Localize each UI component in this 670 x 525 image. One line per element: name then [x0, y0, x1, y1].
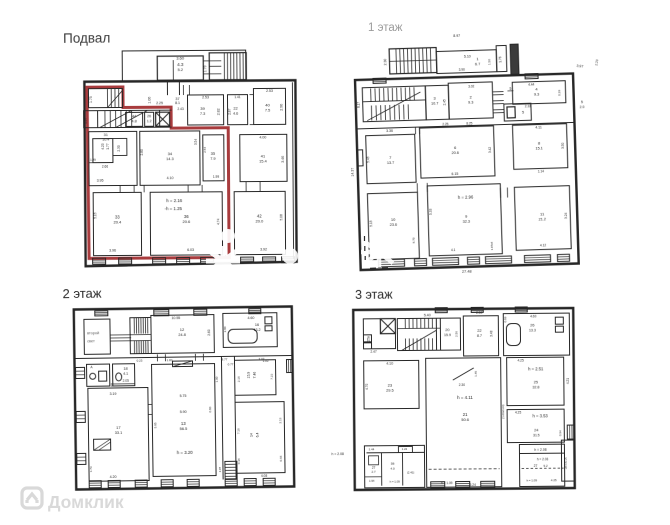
svg-text:23.6: 23.6 — [390, 223, 398, 227]
svg-text:4.60: 4.60 — [247, 316, 254, 320]
svg-text:h = 2.03: h = 2.03 — [537, 457, 549, 461]
svg-text:8.97: 8.97 — [453, 34, 460, 38]
svg-text:10.4: 10.4 — [102, 138, 109, 142]
svg-text:27: 27 — [534, 464, 538, 468]
svg-text:31.5: 31.5 — [533, 433, 540, 437]
svg-text:10.7: 10.7 — [431, 102, 439, 106]
svg-text:1.89: 1.89 — [90, 158, 96, 162]
svg-text:22: 22 — [477, 329, 481, 333]
svg-text:0.80: 0.80 — [208, 406, 212, 412]
svg-text:20.0: 20.0 — [255, 218, 264, 223]
svg-text:5: 5 — [509, 87, 511, 91]
svg-text:3.24: 3.24 — [564, 212, 568, 219]
svg-text:0.66: 0.66 — [279, 455, 283, 461]
svg-text:2.96: 2.96 — [280, 104, 284, 111]
svg-text:9.2: 9.2 — [543, 464, 548, 468]
svg-text:2.54: 2.54 — [203, 147, 207, 153]
svg-text:5.15: 5.15 — [93, 212, 97, 218]
svg-text:h = 2.16: h = 2.16 — [166, 198, 183, 203]
svg-text:2.05: 2.05 — [123, 379, 129, 383]
svg-text:4.25: 4.25 — [515, 410, 521, 414]
svg-text:2.30: 2.30 — [383, 59, 387, 66]
svg-text:(2.41): (2.41) — [407, 470, 414, 474]
svg-text:4.20: 4.20 — [110, 475, 117, 479]
svg-text:3.54: 3.54 — [194, 139, 198, 145]
svg-text:5.10: 5.10 — [464, 55, 471, 59]
svg-text:5.15: 5.15 — [369, 220, 373, 227]
svg-text:6.24: 6.24 — [470, 483, 476, 487]
svg-text:2.60: 2.60 — [207, 329, 211, 335]
svg-text:1.06: 1.06 — [147, 97, 151, 104]
svg-text:4.21: 4.21 — [566, 378, 570, 384]
svg-text:3.46: 3.46 — [281, 156, 285, 163]
svg-text:6.15: 6.15 — [451, 172, 458, 176]
svg-text:3.36: 3.36 — [386, 129, 393, 133]
svg-text:5.33: 5.33 — [429, 208, 433, 215]
svg-text:1.77: 1.77 — [106, 143, 110, 149]
svg-text:1.87х4: 1.87х4 — [490, 241, 494, 250]
svg-text:5.2: 5.2 — [177, 67, 183, 72]
svg-text:2.53: 2.53 — [266, 89, 273, 93]
svg-text:3.42: 3.42 — [488, 147, 492, 154]
svg-text:2(6.0)/2.20: 2(6.0)/2.20 — [565, 456, 568, 469]
svg-text:0.34: 0.34 — [237, 458, 241, 464]
svg-text:7.23: 7.23 — [270, 373, 274, 379]
svg-text:3.02: 3.02 — [468, 84, 475, 88]
svg-text:2.0: 2.0 — [580, 105, 585, 109]
svg-text:2 этаж: 2 этаж — [62, 286, 101, 302]
svg-text:31: 31 — [104, 133, 108, 137]
svg-text:9.3: 9.3 — [468, 100, 473, 104]
svg-text:h = 2.51: h = 2.51 — [528, 366, 544, 371]
svg-text:3.48: 3.48 — [489, 330, 493, 336]
svg-text:3.50: 3.50 — [561, 142, 565, 149]
svg-text:0.23: 0.23 — [137, 359, 143, 363]
svg-text:4.10: 4.10 — [167, 176, 174, 180]
svg-text:7.16: 7.16 — [236, 428, 240, 434]
svg-text:20.6: 20.6 — [182, 219, 191, 224]
svg-text:0.94: 0.94 — [558, 430, 562, 436]
svg-text:27.48: 27.48 — [462, 270, 472, 274]
svg-text:4.00: 4.00 — [259, 135, 266, 139]
svg-text:0.77: 0.77 — [228, 362, 234, 366]
svg-text:2.87: 2.87 — [228, 108, 232, 114]
svg-text:2.80: 2.80 — [223, 326, 227, 332]
svg-text:25: 25 — [534, 380, 538, 384]
svg-text:5.85: 5.85 — [153, 422, 157, 428]
svg-text:25а: 25а — [366, 336, 370, 342]
svg-text:3.19: 3.19 — [110, 392, 117, 396]
svg-text:8.77: 8.77 — [222, 357, 228, 361]
svg-text:Подвал: Подвал — [63, 31, 110, 46]
svg-text:13.7: 13.7 — [387, 161, 395, 165]
svg-text:2.87: 2.87 — [218, 466, 222, 472]
svg-text:2.50: 2.50 — [476, 311, 482, 315]
svg-text:16: 16 — [255, 323, 259, 327]
svg-text:2.7: 2.7 — [372, 470, 377, 474]
svg-text:21.2: 21.2 — [539, 217, 547, 221]
svg-text:4.1: 4.1 — [123, 372, 128, 376]
svg-text:8.1: 8.1 — [175, 101, 180, 105]
svg-text:13.2: 13.2 — [254, 328, 261, 332]
svg-text:4.25: 4.25 — [551, 478, 557, 482]
svg-text:20: 20 — [445, 328, 449, 332]
svg-text:7.9: 7.9 — [210, 157, 215, 161]
svg-text:h = 4.11: h = 4.11 — [457, 395, 473, 400]
svg-text:2.30: 2.30 — [117, 145, 121, 151]
svg-text:2.33: 2.33 — [525, 104, 532, 108]
svg-text:Домклик: Домклик — [48, 492, 124, 512]
svg-text:1.90: 1.90 — [215, 376, 219, 382]
svg-text:4.10: 4.10 — [386, 362, 393, 366]
svg-text:1.07: 1.07 — [84, 117, 88, 123]
svg-text:2.16: 2.16 — [237, 376, 241, 382]
svg-text:15.4: 15.4 — [259, 159, 266, 163]
svg-text:5.40: 5.40 — [424, 313, 431, 317]
svg-text:2.53: 2.53 — [202, 95, 209, 99]
svg-text:1.73: 1.73 — [89, 466, 93, 472]
svg-text:29.5: 29.5 — [386, 389, 393, 393]
svg-text:7.3: 7.3 — [200, 112, 205, 116]
svg-text:3.90: 3.90 — [459, 68, 466, 72]
svg-text:9.3: 9.3 — [534, 92, 539, 96]
svg-text:1.75: 1.75 — [89, 96, 93, 103]
svg-text:h = 1.09: h = 1.09 — [390, 480, 401, 484]
svg-text:3.95: 3.95 — [97, 179, 104, 183]
svg-text:1.80: 1.80 — [167, 358, 173, 362]
svg-text:(1.60х0.64): (1.60х0.64) — [501, 405, 505, 419]
svg-text:1.94: 1.94 — [369, 479, 375, 483]
svg-text:7.5: 7.5 — [265, 108, 270, 112]
svg-text:1.99: 1.99 — [213, 175, 219, 179]
svg-text:5.75: 5.75 — [180, 394, 187, 398]
svg-text:8.79: 8.79 — [412, 237, 416, 243]
svg-text:2.45: 2.45 — [443, 99, 447, 106]
svg-text:2.13: 2.13 — [278, 417, 282, 423]
svg-text:22: 22 — [233, 107, 237, 111]
svg-text:h = 3.20: h = 3.20 — [177, 450, 194, 455]
svg-text:1.2: 1.2 — [147, 119, 152, 123]
svg-text:1.79: 1.79 — [203, 65, 207, 72]
svg-text:3.97: 3.97 — [576, 64, 583, 69]
svg-text:5: 5 — [581, 100, 583, 104]
svg-text:1.44: 1.44 — [369, 447, 375, 451]
svg-text:2.30: 2.30 — [459, 383, 465, 387]
svg-text:4.8: 4.8 — [132, 119, 137, 123]
svg-text:свет: свет — [87, 339, 95, 343]
svg-text:2.25: 2.25 — [442, 122, 449, 126]
svg-text:-h = 1.25: -h = 1.25 — [165, 206, 183, 211]
svg-text:5: 5 — [522, 110, 524, 114]
svg-text:4.12: 4.12 — [540, 243, 547, 247]
svg-text:3В: 3В — [391, 462, 395, 466]
svg-text:33.1: 33.1 — [115, 431, 122, 435]
svg-text:3.60: 3.60 — [176, 56, 185, 61]
svg-text:14.3: 14.3 — [166, 157, 173, 161]
svg-text:26: 26 — [530, 323, 534, 327]
svg-text:1.41: 1.41 — [234, 95, 240, 99]
svg-text:1.22: 1.22 — [402, 447, 408, 451]
svg-text:второй: второй — [87, 331, 99, 335]
svg-text:h = 3.53: h = 3.53 — [532, 413, 548, 418]
svg-text:26: 26 — [147, 114, 151, 118]
svg-text:8.25: 8.25 — [466, 122, 473, 126]
svg-text:2.43: 2.43 — [177, 107, 183, 111]
svg-text:4.70: 4.70 — [365, 384, 369, 390]
svg-text:1 этаж: 1 этаж — [368, 22, 403, 34]
svg-text:4.6: 4.6 — [233, 112, 238, 116]
svg-text:3.03: 3.03 — [263, 359, 269, 363]
svg-text:4.44: 4.44 — [528, 83, 535, 87]
svg-text:4.0: 4.0 — [391, 467, 396, 471]
svg-text:5.08: 5.08 — [279, 214, 283, 220]
svg-text:2.56: 2.56 — [454, 331, 458, 337]
svg-text:3 этаж: 3 этаж — [355, 288, 393, 302]
svg-text:3.92: 3.92 — [260, 247, 267, 251]
svg-text:h = 1.09: h = 1.09 — [526, 478, 537, 482]
svg-text:4.25: 4.25 — [518, 358, 524, 362]
svg-text:15,9: 15,9 — [247, 372, 251, 379]
svg-text:32.3: 32.3 — [463, 220, 471, 224]
svg-text:10.55: 10.55 — [171, 316, 180, 320]
svg-text:13.3: 13.3 — [529, 328, 536, 332]
svg-text:8.7: 8.7 — [477, 334, 482, 338]
svg-text:2.25: 2.25 — [156, 101, 163, 105]
svg-text:7.46: 7.46 — [253, 372, 257, 379]
svg-text:32.8: 32.8 — [532, 385, 539, 389]
svg-text:4.08: 4.08 — [261, 474, 267, 478]
svg-text:5.45: 5.45 — [366, 156, 370, 163]
svg-text:2.80: 2.80 — [140, 149, 144, 155]
svg-text:4.1: 4.1 — [451, 248, 456, 252]
svg-text:0.89: 0.89 — [503, 316, 507, 322]
svg-text:56.5: 56.5 — [179, 426, 188, 431]
svg-text:4.74: 4.74 — [216, 218, 220, 224]
svg-text:14: 14 — [249, 433, 253, 437]
svg-text:3.96: 3.96 — [109, 249, 116, 253]
svg-text:1.76: 1.76 — [498, 56, 502, 63]
svg-text:6.7: 6.7 — [475, 62, 480, 66]
svg-text:h = 2.96: h = 2.96 — [458, 195, 474, 200]
svg-text:4.11: 4.11 — [535, 125, 542, 129]
svg-text:15.9: 15.9 — [444, 333, 451, 337]
svg-text:24: 24 — [534, 428, 538, 432]
svg-text:44: 44 — [132, 114, 136, 118]
svg-text:h = 2.08: h = 2.08 — [331, 452, 343, 456]
svg-text:5.90: 5.90 — [180, 410, 187, 414]
svg-text:20.6: 20.6 — [452, 151, 460, 155]
svg-text:1.14: 1.14 — [538, 169, 545, 173]
svg-text:2.47: 2.47 — [370, 350, 376, 354]
svg-text:20.4: 20.4 — [113, 219, 122, 224]
svg-text:2.66: 2.66 — [102, 165, 108, 169]
svg-text:24.8: 24.8 — [178, 333, 185, 337]
svg-text:4.60: 4.60 — [530, 314, 536, 318]
svg-text:1.45: 1.45 — [474, 371, 478, 377]
svg-text:14.37: 14.37 — [351, 168, 355, 177]
svg-text:50.6: 50.6 — [461, 417, 470, 422]
svg-text:4.20: 4.20 — [101, 143, 105, 149]
svg-text:0.29: 0.29 — [557, 90, 561, 96]
svg-text:15.1: 15.1 — [535, 146, 543, 150]
svg-text:6,4: 6,4 — [255, 432, 259, 437]
svg-text:6.03: 6.03 — [187, 248, 194, 252]
svg-text:h = 2.08: h = 2.08 — [534, 448, 546, 452]
svg-text:1.50: 1.50 — [487, 59, 491, 65]
svg-text:8.17: 8.17 — [357, 102, 361, 109]
svg-text:2.82: 2.82 — [217, 108, 221, 115]
svg-text:18: 18 — [123, 367, 127, 371]
